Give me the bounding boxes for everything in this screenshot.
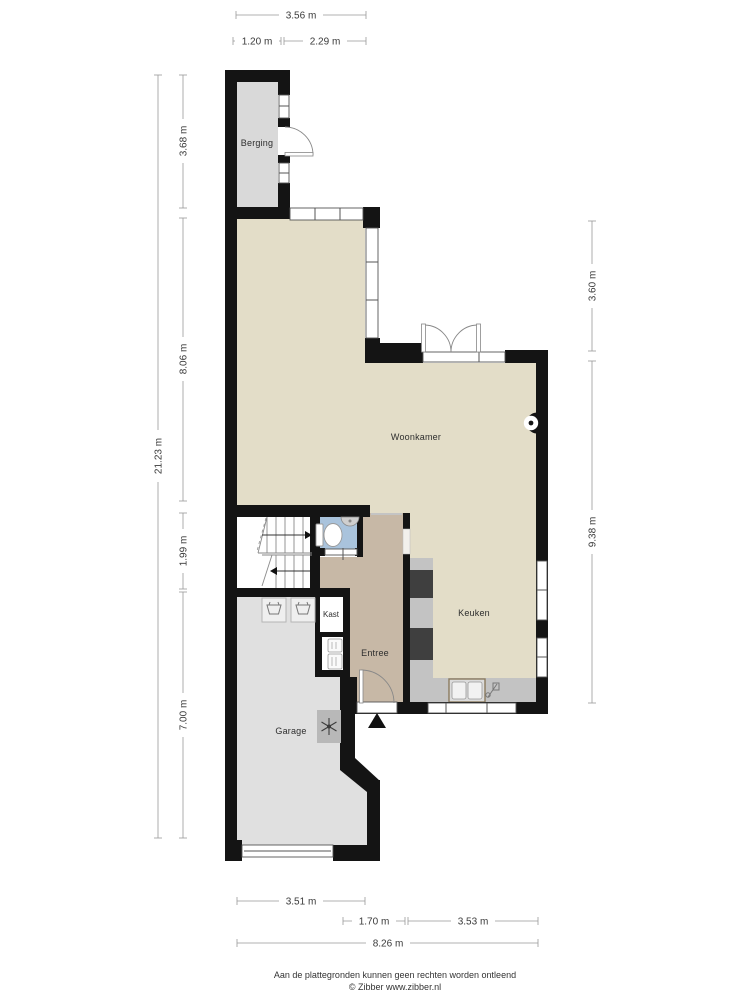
wall-berging-bottom xyxy=(225,207,290,219)
svg-text:1.70 m: 1.70 m xyxy=(359,917,390,928)
wall-berging-right-1 xyxy=(278,70,290,95)
kitchen-sink-bowl-right xyxy=(468,682,482,699)
dim-top-2: 2.29 m xyxy=(284,35,366,48)
dim-left-3: 1.99 m xyxy=(177,513,190,589)
kitchen-appliance-lower xyxy=(410,628,433,660)
svg-text:7.00 m: 7.00 m xyxy=(179,700,190,731)
floorplan-canvas: Berging Woonkamer Keuken Entree Kast Gar… xyxy=(0,0,750,1000)
svg-text:8.06 m: 8.06 m xyxy=(179,344,190,375)
woonkamer-floor-left xyxy=(237,219,365,507)
wall-berging-right-2 xyxy=(278,118,290,127)
dim-bottom-2: 1.70 m xyxy=(343,915,405,928)
svg-text:1.99 m: 1.99 m xyxy=(179,536,190,567)
label-entree: Entree xyxy=(361,648,389,658)
svg-text:3.53 m: 3.53 m xyxy=(458,917,489,928)
footer-copyright: © Zibber www.zibber.nl xyxy=(349,982,441,992)
label-berging: Berging xyxy=(241,138,273,148)
front-door-strip xyxy=(357,702,397,713)
window-keuken-bottom xyxy=(428,703,516,713)
svg-text:8.26 m: 8.26 m xyxy=(373,939,404,950)
entrance-arrow xyxy=(368,713,386,728)
svg-text:3.60 m: 3.60 m xyxy=(588,271,599,302)
footer: Aan de plattegronden kunnen geen rechten… xyxy=(274,970,516,992)
wall-left xyxy=(225,70,237,861)
washer-icon-2 xyxy=(291,598,315,622)
dim-bottom-3: 3.53 m xyxy=(408,915,538,928)
dim-left-1: 3.68 m xyxy=(177,75,190,208)
dim-left-4: 7.00 m xyxy=(177,592,190,838)
dim-left-2: 8.06 m xyxy=(177,218,190,501)
svg-text:2.29 m: 2.29 m xyxy=(310,37,341,48)
svg-text:1.20 m: 1.20 m xyxy=(242,37,273,48)
dim-left-total: 21.23 m xyxy=(152,75,165,838)
wall-garage-bl-block xyxy=(225,840,242,861)
dim-top-total: 3.56 m xyxy=(236,8,366,22)
heater-icon xyxy=(317,710,341,743)
terrace-double-door xyxy=(422,324,481,352)
svg-text:3.56 m: 3.56 m xyxy=(286,11,317,22)
dim-bottom-1: 3.51 m xyxy=(237,895,365,908)
label-woonkamer: Woonkamer xyxy=(391,432,441,442)
footer-disclaimer: Aan de plattegronden kunnen geen rechten… xyxy=(274,970,516,980)
dim-right-2: 9.38 m xyxy=(586,361,599,703)
window-woonkamer-east xyxy=(366,228,378,338)
entree-floor-hall xyxy=(320,557,403,588)
wc-door-strip xyxy=(325,549,357,555)
label-keuken: Keuken xyxy=(458,608,490,618)
terrace-door-threshold xyxy=(423,352,505,362)
stairs-floor xyxy=(237,517,312,588)
svg-text:9.38 m: 9.38 m xyxy=(588,517,599,548)
wall-woonkamer-bottom xyxy=(225,505,370,517)
wall-wc-bottom-left xyxy=(310,548,325,556)
wall-garage-right-upper xyxy=(340,702,355,764)
svg-text:21.23 m: 21.23 m xyxy=(154,438,165,474)
label-garage: Garage xyxy=(275,726,306,736)
window-woonkamer-top xyxy=(290,208,363,220)
label-kast: Kast xyxy=(323,610,340,619)
wall-rightwing-top-left xyxy=(378,343,423,363)
washer-icon-1 xyxy=(262,598,286,622)
wall-window-cap-bottom xyxy=(365,338,380,363)
wall-corner-topright xyxy=(363,207,380,228)
kitchen-appliance-upper xyxy=(410,570,433,598)
meterkast-units xyxy=(328,639,342,669)
wall-garage-br-block xyxy=(333,845,380,861)
dim-top-1: 1.20 m xyxy=(233,35,281,48)
toilet-icon xyxy=(316,524,342,547)
floorplan-page: Berging Woonkamer Keuken Entree Kast Gar… xyxy=(0,0,750,1000)
kitchen-sink-bowl-left xyxy=(452,682,466,699)
svg-text:3.68 m: 3.68 m xyxy=(179,126,190,157)
berging-door-cutout xyxy=(278,127,290,155)
svg-text:3.51 m: 3.51 m xyxy=(286,897,317,908)
dim-right-1: 3.60 m xyxy=(586,221,599,351)
entree-floor-upper xyxy=(363,513,403,557)
dim-bottom-total: 8.26 m xyxy=(237,937,538,950)
keuken-doorway-cutout xyxy=(403,529,410,554)
